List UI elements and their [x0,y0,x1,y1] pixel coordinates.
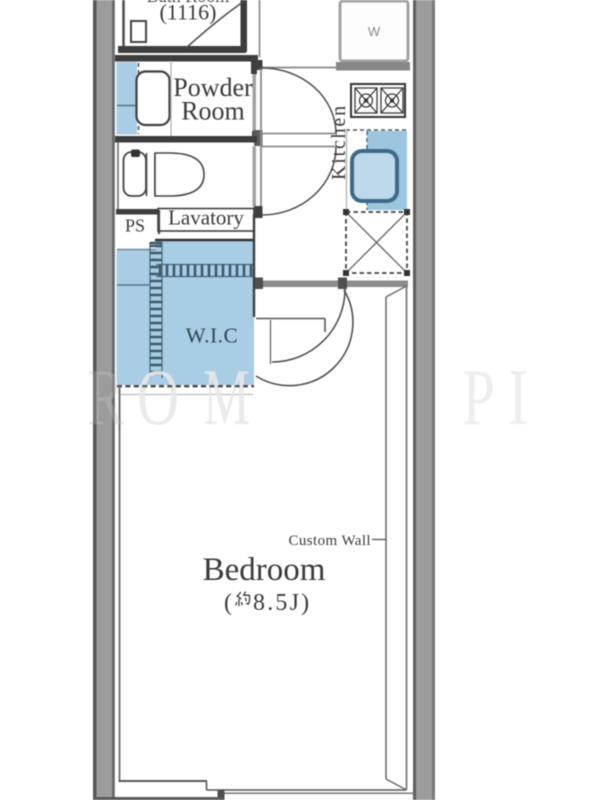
svg-text:W: W [368,24,381,39]
svg-text:Room: Room [181,97,245,126]
svg-text:(: ( [224,590,232,616]
svg-text:(1116): (1116) [159,0,216,25]
svg-text:I: I [508,354,528,442]
svg-text:Custom Wall: Custom Wall [288,533,371,549]
svg-text:8.5J): 8.5J) [253,590,311,616]
svg-text:M: M [203,354,250,442]
svg-text:Bedroom: Bedroom [203,552,326,588]
svg-text:W.I.C: W.I.C [186,324,238,348]
svg-text:P: P [462,354,495,442]
svg-text:Lavatory: Lavatory [168,206,244,230]
svg-text:O: O [137,354,179,442]
svg-text:PS: PS [125,216,145,236]
